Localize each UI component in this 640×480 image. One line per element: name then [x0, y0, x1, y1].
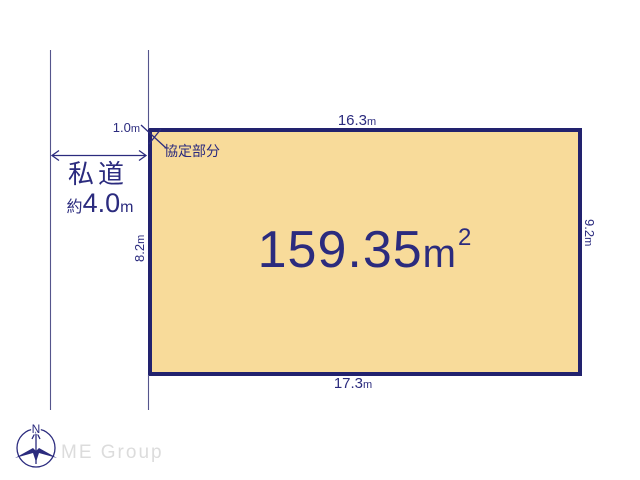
logo-text: ME Group — [61, 443, 164, 462]
dimension-bottom-label: 17.3m — [293, 376, 413, 391]
corner-offset-value: 1.0 — [113, 120, 131, 135]
private-road-label: 私道 — [58, 161, 138, 187]
compass-circle — [17, 429, 55, 467]
compass-icon: N — [15, 422, 57, 467]
dimension-left-label: 8.2m — [133, 235, 147, 262]
road-width-unit: m — [120, 199, 133, 216]
corner-offset-label: 1.0m — [88, 121, 140, 135]
compass-north-label: N — [32, 422, 41, 436]
dimension-top-label: 16.3m — [297, 113, 417, 128]
road-width-label: 約4.0m — [44, 190, 156, 217]
plot-area-superscript: 2 — [458, 224, 472, 251]
arrowhead-left — [52, 151, 59, 161]
dimension-right-label: 9.2m — [582, 219, 596, 246]
road-width-value: 4.0 — [83, 188, 121, 218]
agreement-section-label: 協定部分 — [164, 144, 220, 158]
dimension-right-unit: m — [582, 237, 594, 246]
plot-area-unit: m — [423, 232, 457, 276]
dimension-left-unit: m — [135, 235, 147, 244]
dimension-right-value: 9.2 — [582, 219, 597, 237]
compass-needle-arrowhead — [32, 431, 40, 439]
plot-area-value: 159.35 — [258, 221, 423, 279]
compass-wings — [15, 448, 57, 462]
road-width-prefix: 約 — [67, 199, 83, 216]
dimension-bottom-value: 17.3 — [334, 375, 363, 392]
arrowhead-right — [139, 151, 146, 161]
dimension-left-value: 8.2 — [132, 244, 147, 262]
dimension-top-unit: m — [367, 116, 376, 128]
dimension-bottom-unit: m — [363, 379, 372, 391]
dimension-top-value: 16.3 — [338, 112, 367, 129]
plot-area-label: 159.35m2 — [258, 224, 473, 280]
plot-rect: 159.35m2 — [148, 128, 582, 376]
corner-offset-unit: m — [131, 123, 140, 135]
land-plot-diagram: 159.35m2 16.3m 17.3m 9.2m 8.2m 私道 約4.0m … — [0, 0, 640, 480]
